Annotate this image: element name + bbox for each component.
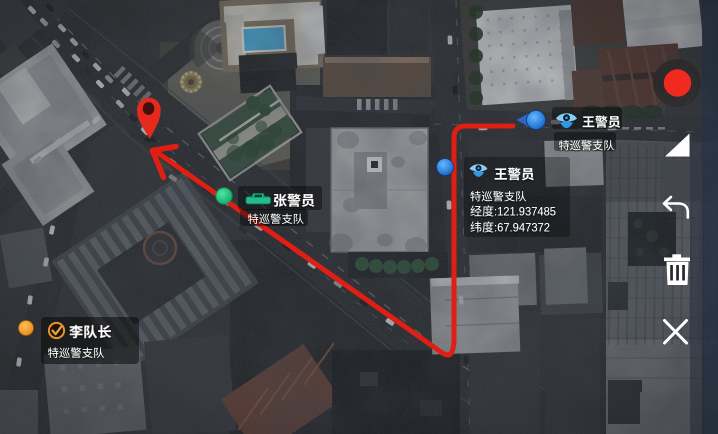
svg-text::67.947372: :67.947372: [494, 221, 550, 235]
svg-text::121.937485: :121.937485: [494, 205, 556, 219]
